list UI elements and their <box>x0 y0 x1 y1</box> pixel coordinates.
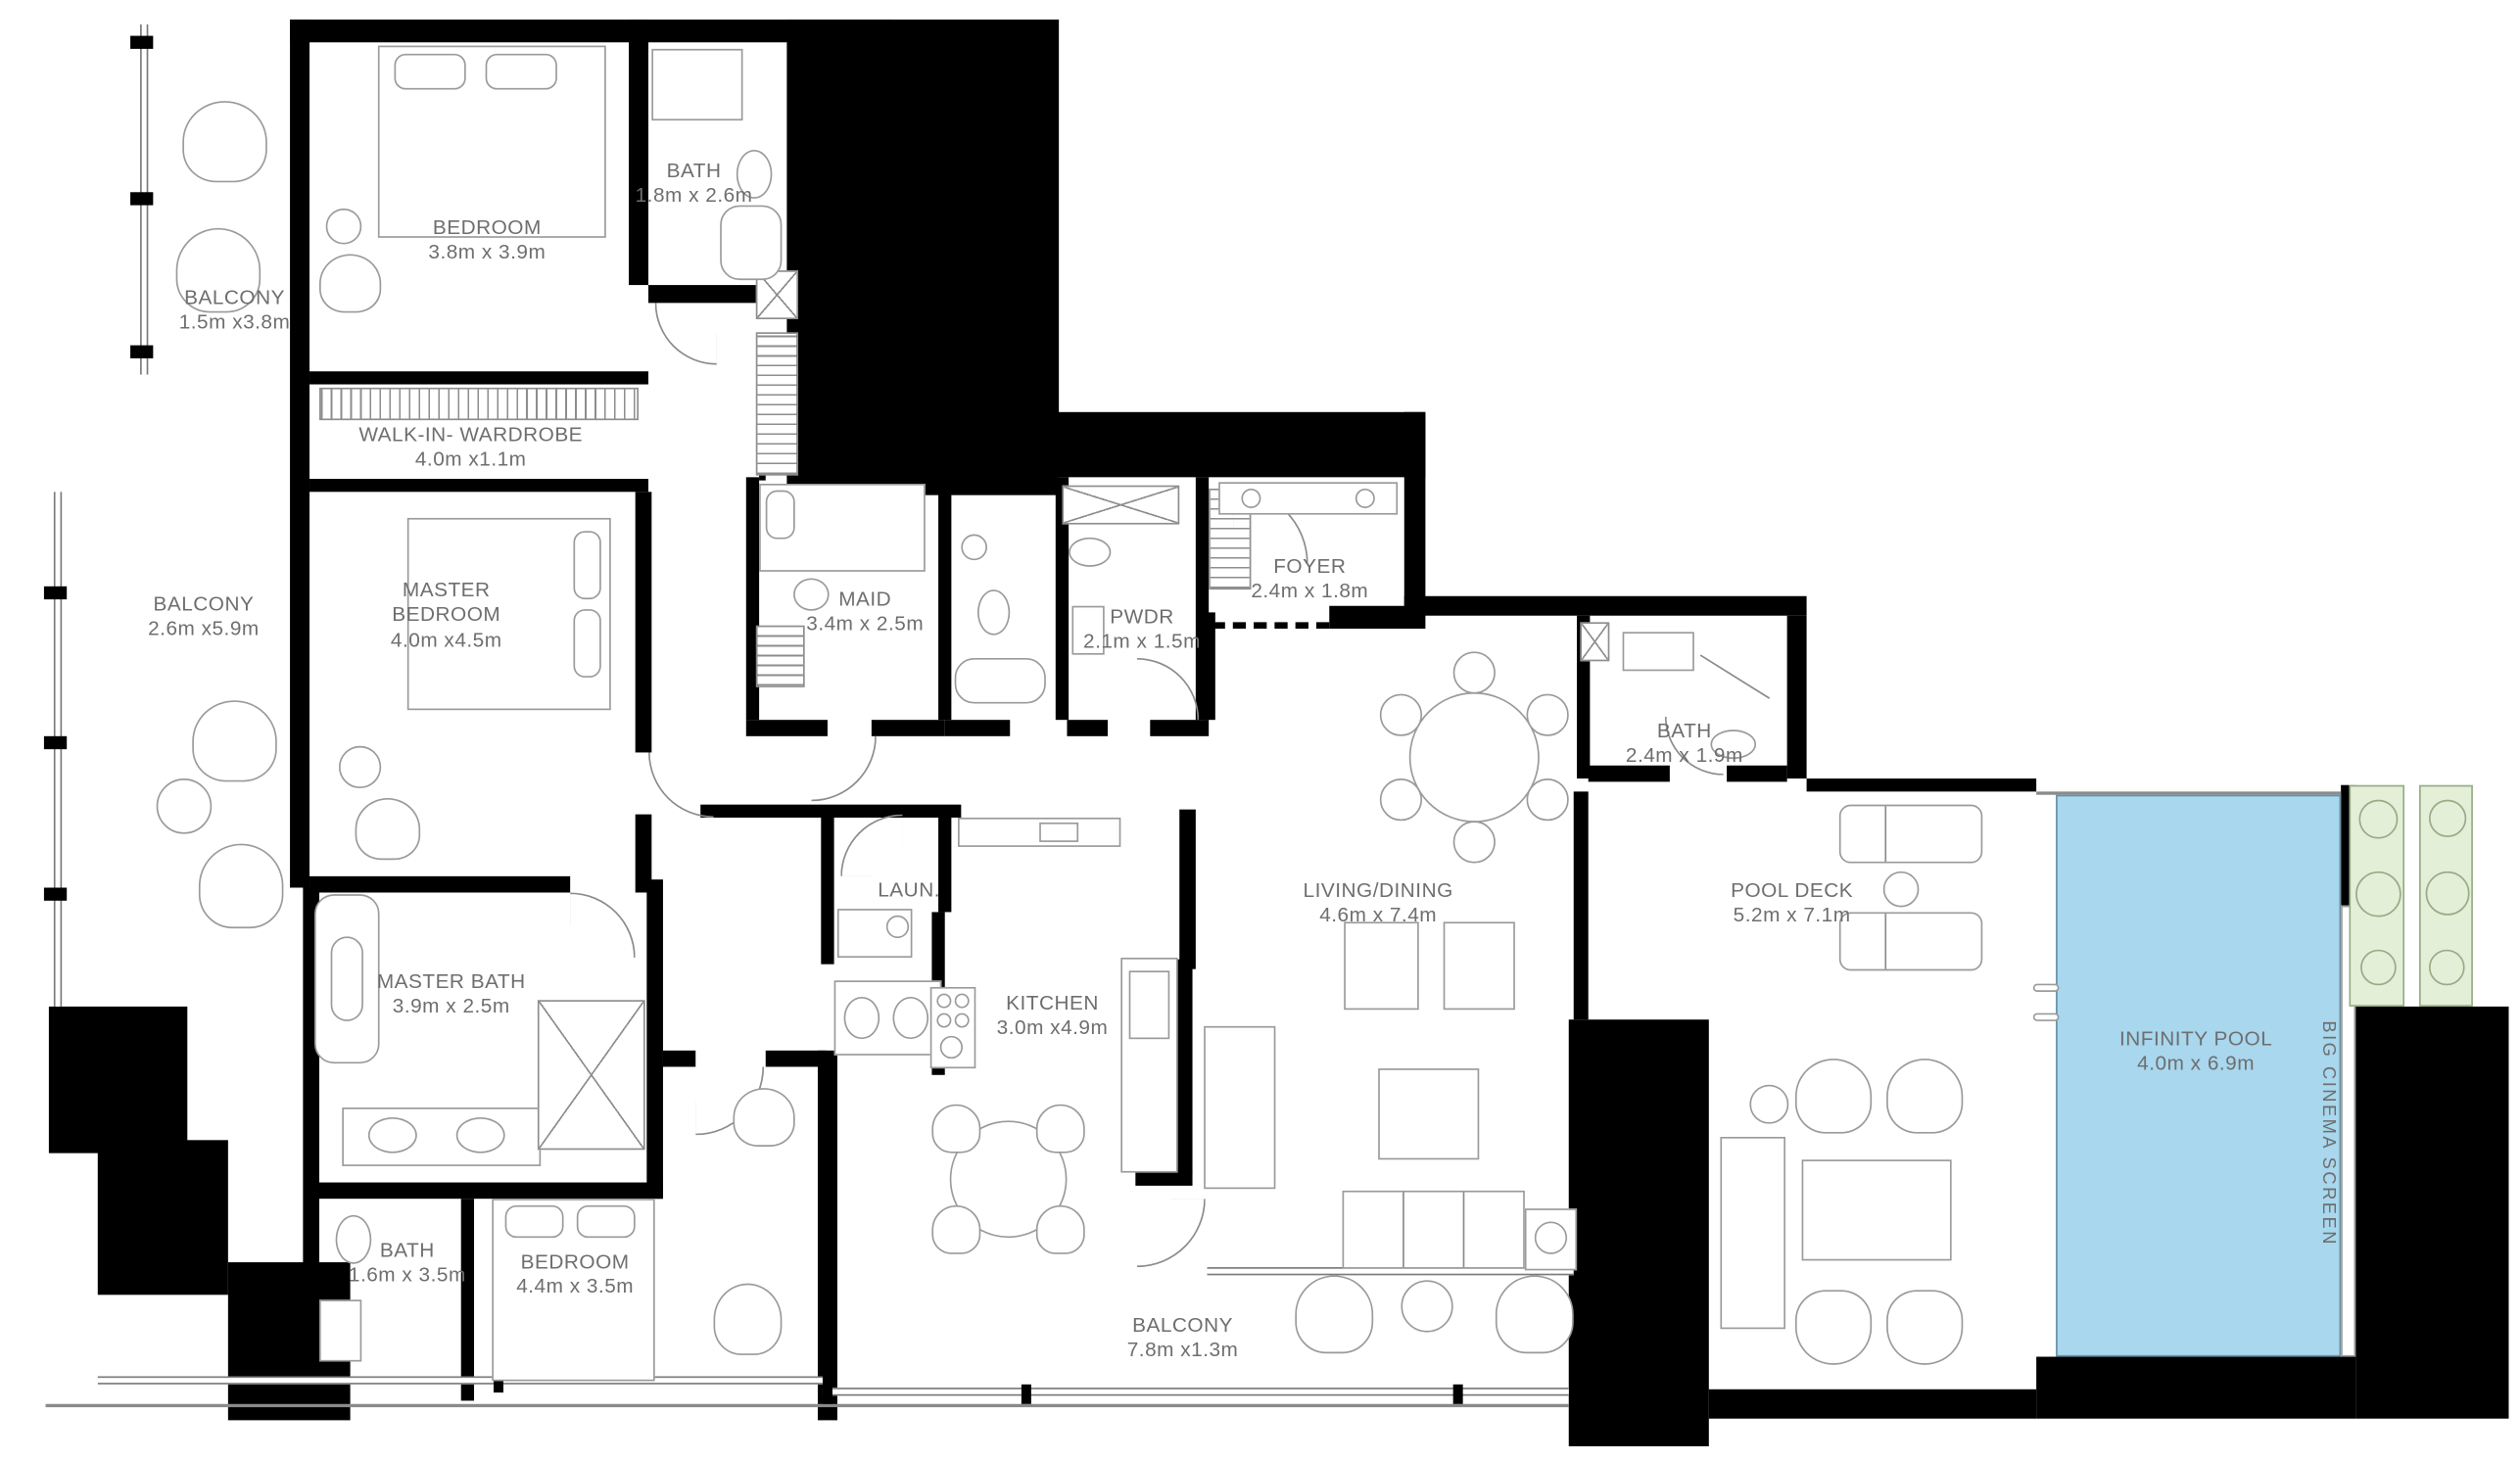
wall <box>1787 616 1807 778</box>
room-label-balcony-top: BALCONY 1.5m x3.8m <box>179 286 291 336</box>
plant-icon <box>2426 871 2470 916</box>
speaker-icon <box>1535 1221 1567 1253</box>
sofa-seam <box>1403 1193 1404 1268</box>
room-label-laundry: LAUN. <box>878 878 940 903</box>
wall <box>2355 1007 2508 1419</box>
door-arc <box>840 815 902 876</box>
pillow-icon <box>505 1205 564 1238</box>
window-mullion <box>130 192 153 205</box>
room-dims: 3.0m x4.9m <box>997 1016 1109 1041</box>
room-dims: 3.4m x 2.5m <box>806 612 924 636</box>
fridge-icon <box>1129 970 1170 1039</box>
sink-icon <box>961 535 987 561</box>
stool-icon <box>339 746 381 788</box>
window-mullion <box>44 587 67 599</box>
room-dims: 1.5m x3.8m <box>179 311 291 336</box>
room-name: FOYER <box>1251 555 1368 580</box>
room-dims: 4.0m x1.1m <box>358 447 583 472</box>
sink-icon <box>844 997 880 1039</box>
armchair-icon <box>1886 1059 1963 1134</box>
burner-icon <box>955 994 970 1009</box>
pillow-icon <box>573 531 600 599</box>
room-name: POOL DECK <box>1731 879 1853 904</box>
room-name: BALCONY <box>179 286 291 310</box>
pool-ladder-icon <box>2033 984 2060 992</box>
dining-table-icon <box>1409 692 1540 823</box>
room-name: BEDROOM <box>428 216 546 241</box>
sink-icon <box>368 1117 417 1154</box>
chair-icon <box>931 1205 980 1254</box>
room-name: BALCONY <box>1127 1314 1239 1339</box>
room-dims: 3.8m x 3.9m <box>428 241 546 265</box>
room-label-living-dining: LIVING/DINING 4.6m x 7.4m <box>1304 879 1453 929</box>
window <box>98 1376 823 1384</box>
wall <box>1067 720 1108 736</box>
room-name: KITCHEN <box>997 992 1109 1016</box>
door-arc <box>655 303 717 364</box>
plant-icon <box>2429 950 2465 986</box>
room-name: LIVING/DINING <box>1304 879 1453 904</box>
wall <box>1178 960 1193 1175</box>
armchair-icon <box>1295 1275 1373 1353</box>
room-name: PWDR <box>1083 605 1201 630</box>
sink-icon <box>720 206 782 281</box>
wall <box>309 371 648 384</box>
room-dims: 4.4m x 3.5m <box>516 1275 634 1299</box>
sun-lounger-icon <box>1839 912 1982 970</box>
wall <box>636 492 652 752</box>
room-name: BALCONY <box>148 592 260 617</box>
room-label-foyer: FOYER 2.4m x 1.8m <box>1251 555 1368 605</box>
floor-plan: BALCONY 1.5m x3.8m BEDROOM 3.8m x 3.9m B… <box>0 0 2520 1460</box>
wall <box>821 815 833 965</box>
chair-icon <box>1036 1105 1085 1154</box>
chair-icon <box>1380 694 1422 736</box>
room-dims: 7.8m x1.3m <box>1127 1339 1239 1363</box>
sofa-icon <box>1343 1191 1525 1269</box>
wall <box>1404 412 1426 606</box>
bookshelf-icon <box>1204 1026 1275 1189</box>
room-name: BEDROOM <box>516 1250 634 1275</box>
room-label-bedroom-3: BEDROOM 4.4m x 3.5m <box>516 1250 634 1300</box>
wall <box>1150 720 1209 736</box>
sink-icon <box>1039 823 1078 842</box>
pool-ladder-icon <box>2033 1013 2060 1021</box>
wall <box>938 815 951 913</box>
plant-icon <box>2358 800 2398 839</box>
room-name: BATH <box>1626 720 1743 744</box>
chair-icon <box>319 254 381 312</box>
coffee-table-icon <box>1802 1159 1952 1260</box>
toilet-icon <box>1069 538 1111 567</box>
room-dims: 3.9m x 2.5m <box>377 995 526 1019</box>
wall <box>1179 810 1196 969</box>
window-mullion <box>1453 1385 1463 1404</box>
planter <box>2349 785 2404 1007</box>
wall <box>290 20 309 888</box>
wall <box>1569 1019 1709 1446</box>
room-name: BATH <box>349 1239 466 1263</box>
room-label-bath-3: BATH 1.6m x 3.5m <box>349 1239 466 1289</box>
wall <box>1807 778 2037 791</box>
bathtub-icon <box>955 658 1046 704</box>
chair-icon <box>1453 651 1496 693</box>
chair-icon <box>1453 821 1496 863</box>
armchair-icon <box>714 1284 783 1355</box>
shower-partition <box>1700 654 1770 698</box>
wall <box>309 479 648 492</box>
pillow-icon <box>573 609 600 678</box>
plant-icon <box>2429 800 2466 837</box>
room-dims: 2.1m x 1.5m <box>1083 631 1201 655</box>
pillow-icon <box>766 491 795 540</box>
wall <box>1574 791 1589 1019</box>
decor-icon <box>1355 489 1375 508</box>
wall <box>872 720 945 736</box>
armchair-icon <box>1886 1290 1963 1365</box>
chair-icon <box>356 798 421 860</box>
lounger-fold <box>1884 914 1886 969</box>
wall <box>746 720 828 736</box>
round-table-icon <box>1883 871 1920 908</box>
armchair-icon <box>1496 1275 1574 1353</box>
door-arc <box>1137 658 1199 720</box>
wall <box>461 1199 474 1400</box>
sofa-icon <box>1720 1137 1785 1329</box>
plant-icon <box>2355 871 2401 918</box>
closet-icon <box>1062 486 1179 525</box>
room-label-pwdr: PWDR 2.1m x 1.5m <box>1083 605 1201 655</box>
room-dims: 1.8m x 2.6m <box>636 184 753 209</box>
room-dims: 1.6m x 3.5m <box>349 1264 466 1289</box>
shower-icon <box>538 1000 645 1150</box>
room-name: WALK-IN- WARDROBE <box>358 423 583 447</box>
room-name: MASTER BEDROOM <box>376 579 516 629</box>
room-label-walk-in-wardrobe: WALK-IN- WARDROBE 4.0m x1.1m <box>358 423 583 473</box>
room-label-infinity-pool: INFINITY POOL 4.0m x 6.9m <box>2119 1027 2272 1077</box>
door-arc <box>811 736 877 802</box>
round-table-icon <box>1401 1280 1452 1332</box>
wall <box>663 1051 695 1067</box>
door-arc <box>570 892 636 958</box>
room-label-balcony-bottom: BALCONY 7.8m x1.3m <box>1127 1314 1239 1364</box>
wall <box>1709 1389 2036 1419</box>
door-arc <box>1137 1199 1206 1267</box>
room-dims: 4.0m x 6.9m <box>2119 1052 2272 1076</box>
room-label-master-bath: MASTER BATH 3.9m x 2.5m <box>377 970 526 1020</box>
armchair-icon <box>199 844 283 928</box>
window-mullion <box>44 736 67 749</box>
closet-icon <box>1580 622 1609 661</box>
chair-icon <box>1527 694 1569 736</box>
window-mullion <box>44 887 67 900</box>
wall <box>786 412 1425 478</box>
bathtub-basin <box>331 936 363 1020</box>
lounger-fold <box>1884 806 1886 862</box>
chair-icon <box>931 1105 980 1154</box>
room-name: BIG CINEMA SCREEN <box>2318 1020 2338 1246</box>
room-dims: 4.6m x 7.4m <box>1304 904 1453 928</box>
armchair-icon <box>1795 1290 1872 1365</box>
decor-icon <box>1241 489 1260 508</box>
wall <box>938 477 951 720</box>
chair-icon <box>1380 778 1422 821</box>
sink-icon <box>319 1299 361 1361</box>
wall <box>309 876 570 893</box>
armchair-icon <box>1795 1059 1872 1134</box>
sink-icon <box>1623 632 1694 671</box>
stool-icon <box>1749 1085 1788 1124</box>
pillow-icon <box>577 1205 636 1238</box>
door-arc <box>648 752 714 818</box>
balcony-edge <box>46 1404 1569 1407</box>
planter <box>2419 785 2473 1007</box>
wall <box>945 720 1011 736</box>
room-label-master-bedroom: MASTER BEDROOM 4.0m x4.5m <box>376 579 516 653</box>
burner-icon <box>955 1013 970 1028</box>
pillow-icon <box>395 54 466 90</box>
washer-drum <box>886 916 909 938</box>
room-dims: 2.4m x 1.9m <box>1626 744 1743 769</box>
wall <box>629 20 648 285</box>
room-label-bath-guest: BATH 2.4m x 1.9m <box>1626 720 1743 770</box>
wall <box>2036 1357 2355 1419</box>
armchair-icon <box>192 700 276 781</box>
sink-icon <box>892 997 928 1039</box>
wall <box>818 1051 837 1421</box>
armchair-icon <box>1444 921 1515 1010</box>
sofa-seam <box>1463 1193 1465 1268</box>
room-dims: 4.0m x4.5m <box>376 628 516 652</box>
sun-lounger-icon <box>1839 805 1982 864</box>
burner-icon <box>936 994 951 1009</box>
armchair-icon <box>1344 921 1419 1010</box>
room-label-bedroom-top: BEDROOM 3.8m x 3.9m <box>428 216 546 266</box>
shower-icon <box>651 49 742 120</box>
room-name: LAUN. <box>878 878 940 903</box>
room-dims: 2.4m x 1.8m <box>1251 580 1368 604</box>
chair-icon <box>1527 778 1569 821</box>
window-mullion <box>823 1385 832 1404</box>
dashed-opening <box>1212 622 1329 629</box>
pillow-icon <box>486 54 557 90</box>
chair-icon <box>733 1088 794 1147</box>
room-label-kitchen: KITCHEN 3.0m x4.9m <box>997 992 1109 1042</box>
room-name: BATH <box>636 160 753 184</box>
stool-icon <box>326 209 362 245</box>
room-label-pool-deck: POOL DECK 5.2m x 7.1m <box>1731 879 1853 929</box>
wardrobe-rack-icon <box>756 626 805 687</box>
chair-icon <box>1036 1205 1085 1254</box>
room-name: INFINITY POOL <box>2119 1027 2272 1052</box>
round-table-icon <box>157 778 213 834</box>
room-label-maid: MAID 3.4m x 2.5m <box>806 588 924 637</box>
wall <box>646 879 663 1199</box>
sink-icon <box>456 1117 505 1154</box>
window-mullion <box>1022 1385 1031 1404</box>
plant-icon <box>2360 950 2397 986</box>
wardrobe-rack-icon <box>319 388 639 420</box>
rug-icon <box>1378 1068 1479 1159</box>
room-name: MAID <box>806 588 924 612</box>
room-label-balcony-left: BALCONY 2.6m x5.9m <box>148 592 260 642</box>
window-mullion <box>130 346 153 358</box>
wall <box>309 1183 663 1200</box>
burner-icon <box>936 1013 951 1028</box>
floor-plan-canvas: BALCONY 1.5m x3.8m BEDROOM 3.8m x 3.9m B… <box>0 0 2520 1460</box>
room-dims: 2.6m x5.9m <box>148 617 260 641</box>
wall <box>49 1007 187 1154</box>
toilet-icon <box>977 589 1010 636</box>
wall <box>98 1140 228 1295</box>
armchair-icon <box>182 101 266 182</box>
label-big-cinema-screen: BIG CINEMA SCREEN <box>2318 1020 2338 1246</box>
room-name: MASTER BATH <box>377 970 526 995</box>
room-label-bath-top: BATH 1.8m x 2.6m <box>636 160 753 210</box>
wardrobe-rack-icon <box>756 332 798 475</box>
burner-icon <box>940 1036 963 1059</box>
window-mullion <box>130 36 153 49</box>
wall <box>1404 596 1807 616</box>
room-dims: 5.2m x 7.1m <box>1731 904 1853 928</box>
